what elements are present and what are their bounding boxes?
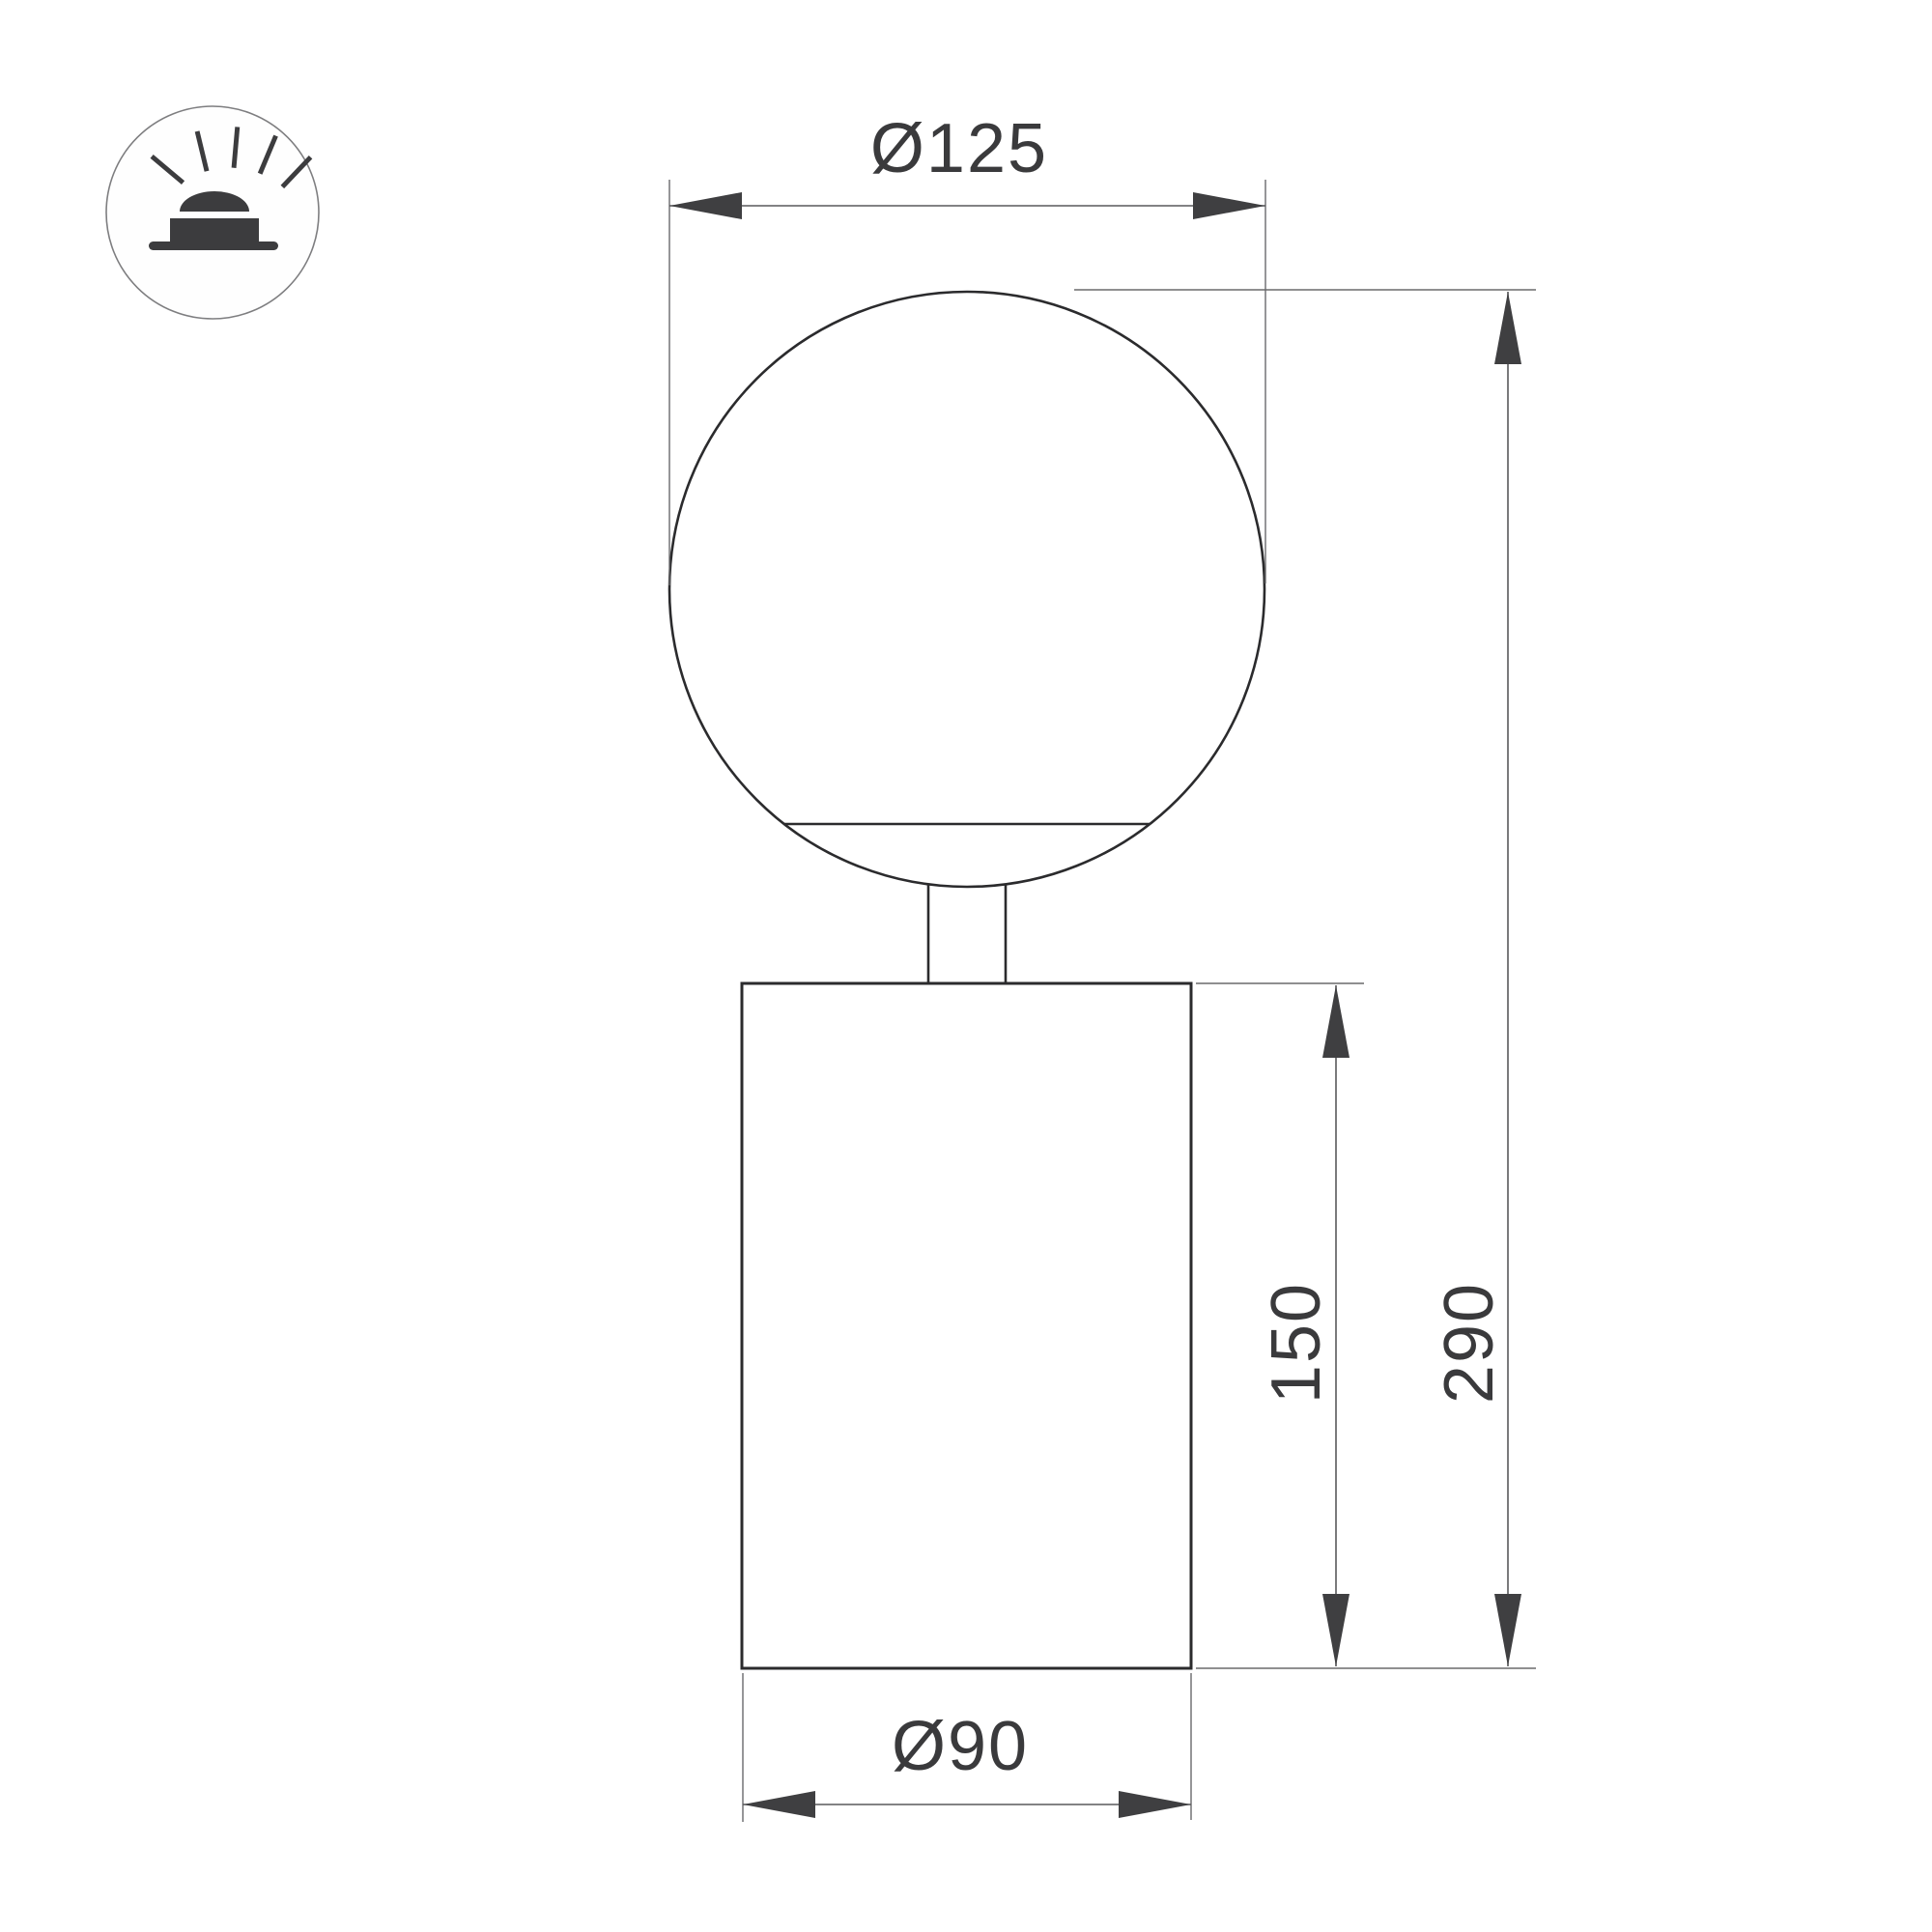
globe-outline: [669, 292, 1264, 887]
base-cylinder: [742, 983, 1191, 1668]
dimension-drawing: Ø125 290 150 Ø90: [0, 0, 1932, 1932]
arrow-down-icon: [1322, 1594, 1350, 1666]
globe-diameter-label: Ø125: [870, 110, 1048, 187]
lamp-base-icon: [149, 241, 278, 250]
luminaire-outline: [669, 292, 1264, 1668]
dim-overall-height: 290: [1074, 290, 1536, 1666]
lamp-body-icon: [170, 218, 259, 241]
arrow-left-icon: [669, 192, 742, 219]
body-diameter-label: Ø90: [892, 1708, 1029, 1785]
arrow-down-icon: [1494, 1594, 1521, 1666]
badge-circle: [106, 106, 319, 319]
arrow-right-icon: [1119, 1791, 1191, 1818]
body-height-label: 150: [1258, 1282, 1335, 1404]
dim-globe-diameter: Ø125: [669, 110, 1265, 585]
arrow-up-icon: [1494, 292, 1521, 364]
arrow-up-icon: [1322, 985, 1350, 1058]
arrow-left-icon: [743, 1791, 815, 1818]
drawing-canvas: Ø125 290 150 Ø90: [0, 0, 1932, 1932]
dim-body-diameter: Ø90: [743, 1673, 1191, 1822]
overall-height-label: 290: [1431, 1282, 1508, 1404]
arrow-right-icon: [1193, 192, 1265, 219]
surface-mounted-light-icon: [106, 106, 319, 319]
